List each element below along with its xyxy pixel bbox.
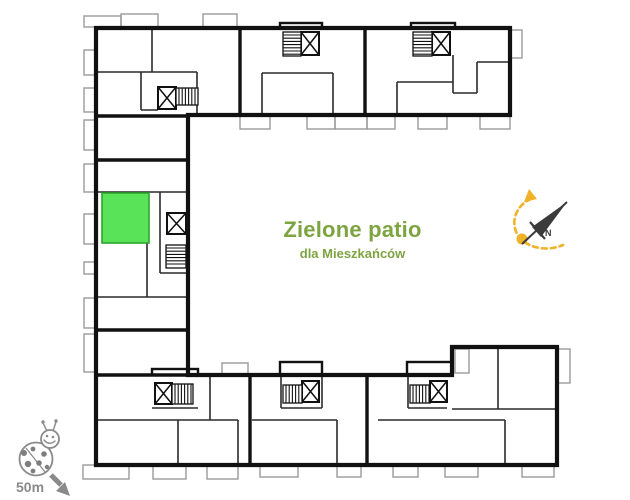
stairwell <box>283 32 319 56</box>
stairs-icon <box>172 384 193 404</box>
site-plan-canvas: N Zielone patio dla Mieszkańców 50m <box>0 0 630 500</box>
stairwell <box>166 213 186 268</box>
compass-group: N <box>514 189 567 248</box>
stairs-icon <box>283 385 302 403</box>
stairwell <box>413 32 450 56</box>
balcony <box>207 466 238 479</box>
stairwell <box>158 87 198 109</box>
stairs-icon <box>283 32 301 56</box>
highlighted-unit[interactable] <box>102 193 149 243</box>
sun-path-arrowhead <box>524 189 537 202</box>
patio-label: Zielone patio dla Mieszkańców <box>250 217 455 261</box>
balcony <box>335 116 367 129</box>
balcony <box>367 116 395 129</box>
stairs-icon <box>413 32 432 56</box>
balcony <box>455 349 469 373</box>
patio-title: Zielone patio <box>250 217 455 243</box>
patio-subtitle: dla Mieszkańców <box>250 246 455 261</box>
balcony <box>418 116 447 129</box>
stairs-icon <box>176 88 198 105</box>
stairwell <box>410 381 447 403</box>
north-label: N <box>545 228 552 238</box>
stairwell <box>283 381 319 403</box>
stairs-icon <box>410 385 430 403</box>
north-arrow-icon: N <box>522 202 567 244</box>
stairwell <box>155 383 193 404</box>
balcony <box>480 116 510 129</box>
balcony <box>307 116 335 129</box>
balcony <box>240 116 270 129</box>
balcony <box>84 16 121 27</box>
stairs-icon <box>166 245 186 268</box>
distance-label: 50m <box>16 479 44 495</box>
direction-arrow-icon <box>51 475 70 496</box>
balcony <box>153 466 186 479</box>
